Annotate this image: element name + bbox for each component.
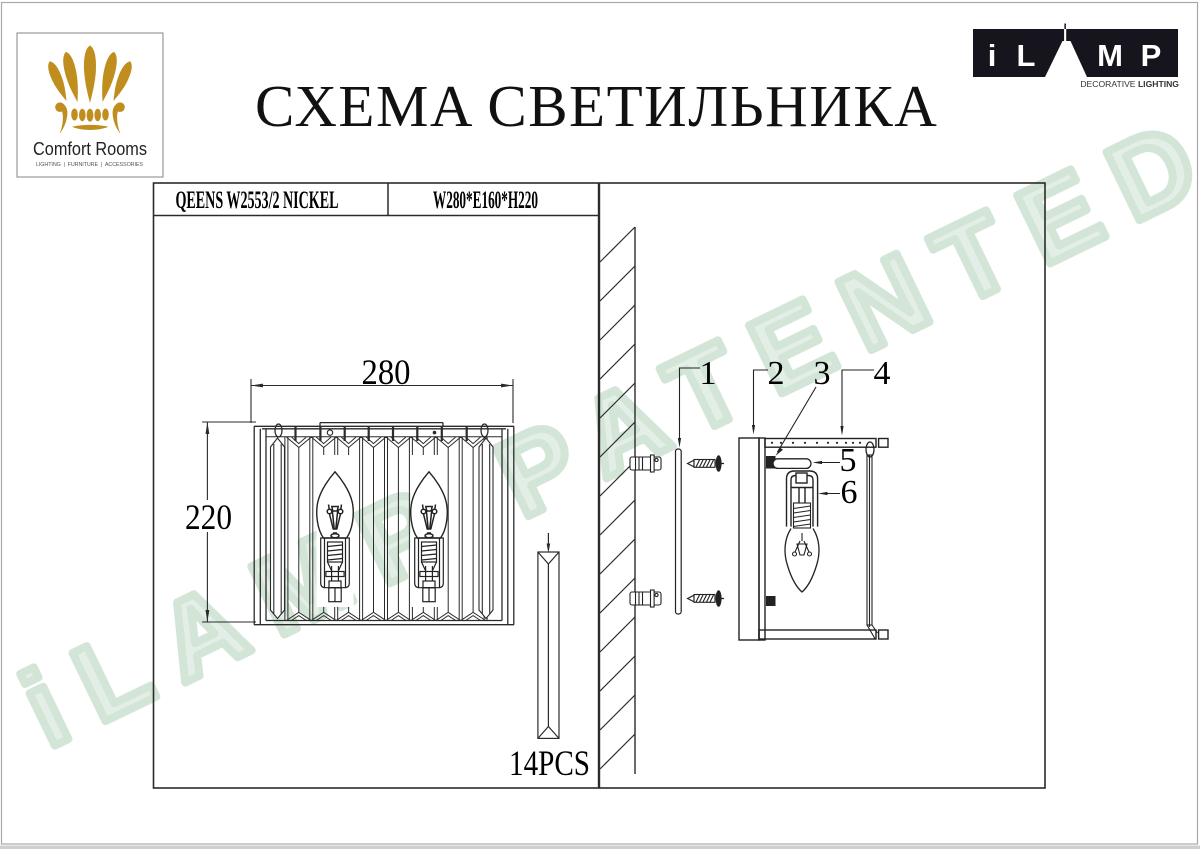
svg-text:M: M — [1097, 38, 1123, 73]
svg-text:L: L — [1017, 38, 1036, 73]
svg-text:14PCS: 14PCS — [509, 743, 590, 783]
svg-text:6: 6 — [841, 474, 858, 511]
svg-text:i: i — [988, 38, 997, 73]
svg-text:P: P — [1141, 38, 1162, 73]
svg-text:3: 3 — [814, 355, 831, 392]
svg-text:2: 2 — [768, 355, 785, 392]
svg-text:QEENS W2553/2 NICKEL: QEENS W2553/2 NICKEL — [176, 187, 339, 214]
svg-text:W280*E160*H220: W280*E160*H220 — [433, 187, 538, 214]
svg-text:DECORATIVE LIGHTING: DECORATIVE LIGHTING — [1080, 79, 1179, 89]
svg-text:4: 4 — [874, 355, 891, 392]
svg-text:1: 1 — [700, 355, 717, 392]
svg-text:СХЕМА СВЕТИЛЬНИКА: СХЕМА СВЕТИЛЬНИКА — [255, 73, 938, 139]
svg-text:280: 280 — [362, 352, 411, 392]
svg-text:Comfort Rooms: Comfort Rooms — [33, 138, 147, 159]
svg-text:LIGHTING | FURNITURE | ACC: LIGHTING | FURNITURE | ACCESSORIES — [36, 162, 143, 168]
svg-text:220: 220 — [185, 497, 232, 537]
